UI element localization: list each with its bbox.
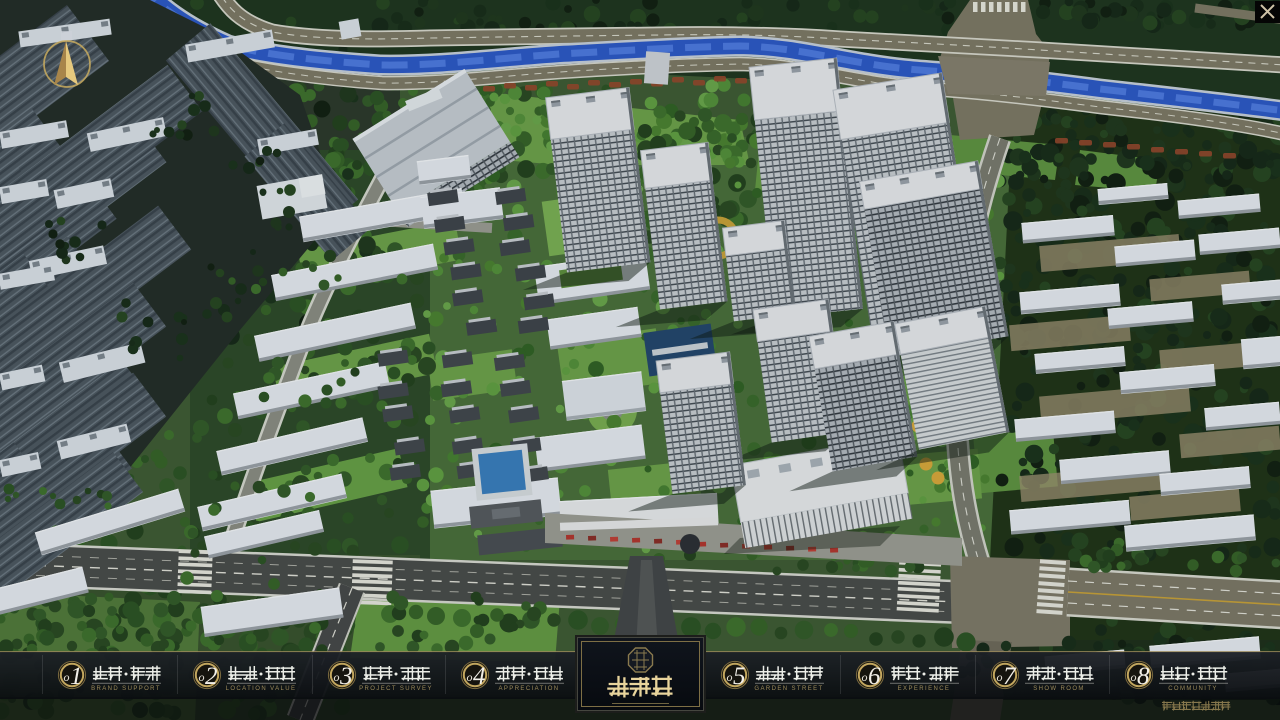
svg-text:5: 5 (733, 663, 746, 690)
svg-text:8: 8 (1137, 663, 1150, 690)
svg-text:LOCATION VALUE: LOCATION VALUE (226, 686, 297, 692)
svg-text:o: o (727, 670, 733, 684)
svg-text:o: o (997, 670, 1003, 684)
svg-text:o: o (334, 670, 340, 684)
svg-text:o: o (862, 670, 868, 684)
svg-text:SHOW ROOM: SHOW ROOM (1033, 686, 1085, 692)
svg-text:BRAND SUPPORT: BRAND SUPPORT (91, 686, 161, 692)
svg-text:GARDEN STREET: GARDEN STREET (754, 686, 823, 692)
svg-text:6: 6 (868, 663, 881, 690)
svg-text:o: o (467, 670, 473, 684)
svg-text:2: 2 (205, 663, 218, 690)
svg-text:7: 7 (1003, 663, 1017, 690)
svg-text:EXPERIENCE: EXPERIENCE (898, 686, 951, 692)
svg-text:o: o (64, 670, 70, 684)
svg-text:4: 4 (473, 663, 486, 690)
svg-text:3: 3 (339, 663, 353, 690)
svg-text:PROJECT SURVEY: PROJECT SURVEY (359, 686, 433, 692)
svg-text:o: o (1131, 670, 1137, 684)
svg-text:APPRECIATION: APPRECIATION (498, 686, 559, 692)
svg-text:1: 1 (70, 663, 83, 690)
svg-text:COMMUNITY: COMMUNITY (1168, 686, 1218, 692)
svg-text:o: o (199, 670, 205, 684)
